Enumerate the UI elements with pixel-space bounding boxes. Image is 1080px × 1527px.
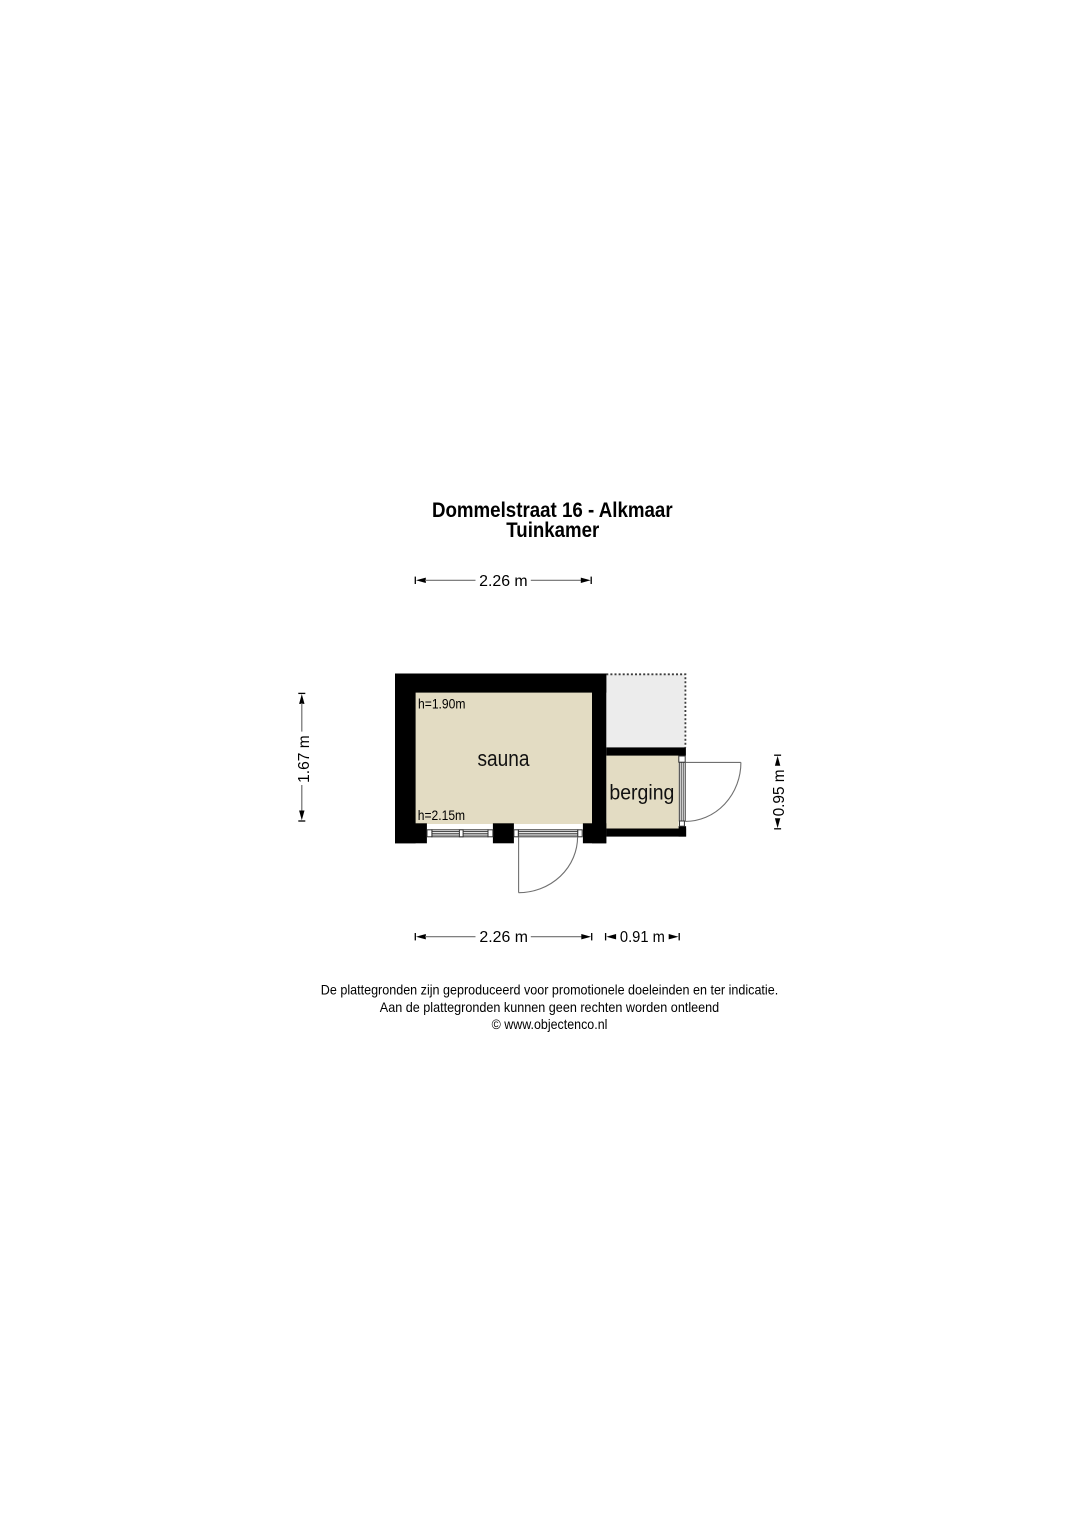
svg-text:h=2.15m: h=2.15m [418, 808, 465, 823]
svg-text:De plattegronden zijn geproduc: De plattegronden zijn geproduceerd voor … [321, 981, 778, 997]
svg-text:h=1.90m: h=1.90m [418, 696, 466, 711]
svg-text:Aan de plattegronden kunnen ge: Aan de plattegronden kunnen geen rechten… [380, 999, 719, 1015]
svg-text:2.26 m: 2.26 m [479, 573, 528, 590]
svg-text:2.26 m: 2.26 m [479, 929, 528, 946]
svg-text:berging: berging [609, 782, 674, 805]
svg-text:Tuinkamer: Tuinkamer [506, 519, 599, 542]
svg-text:0.91 m: 0.91 m [620, 929, 665, 946]
svg-text:sauna: sauna [478, 746, 531, 771]
svg-text:1.67 m: 1.67 m [296, 735, 313, 783]
svg-text:0.95 m: 0.95 m [771, 769, 788, 816]
svg-text:© www.objectenco.nl: © www.objectenco.nl [492, 1016, 608, 1032]
